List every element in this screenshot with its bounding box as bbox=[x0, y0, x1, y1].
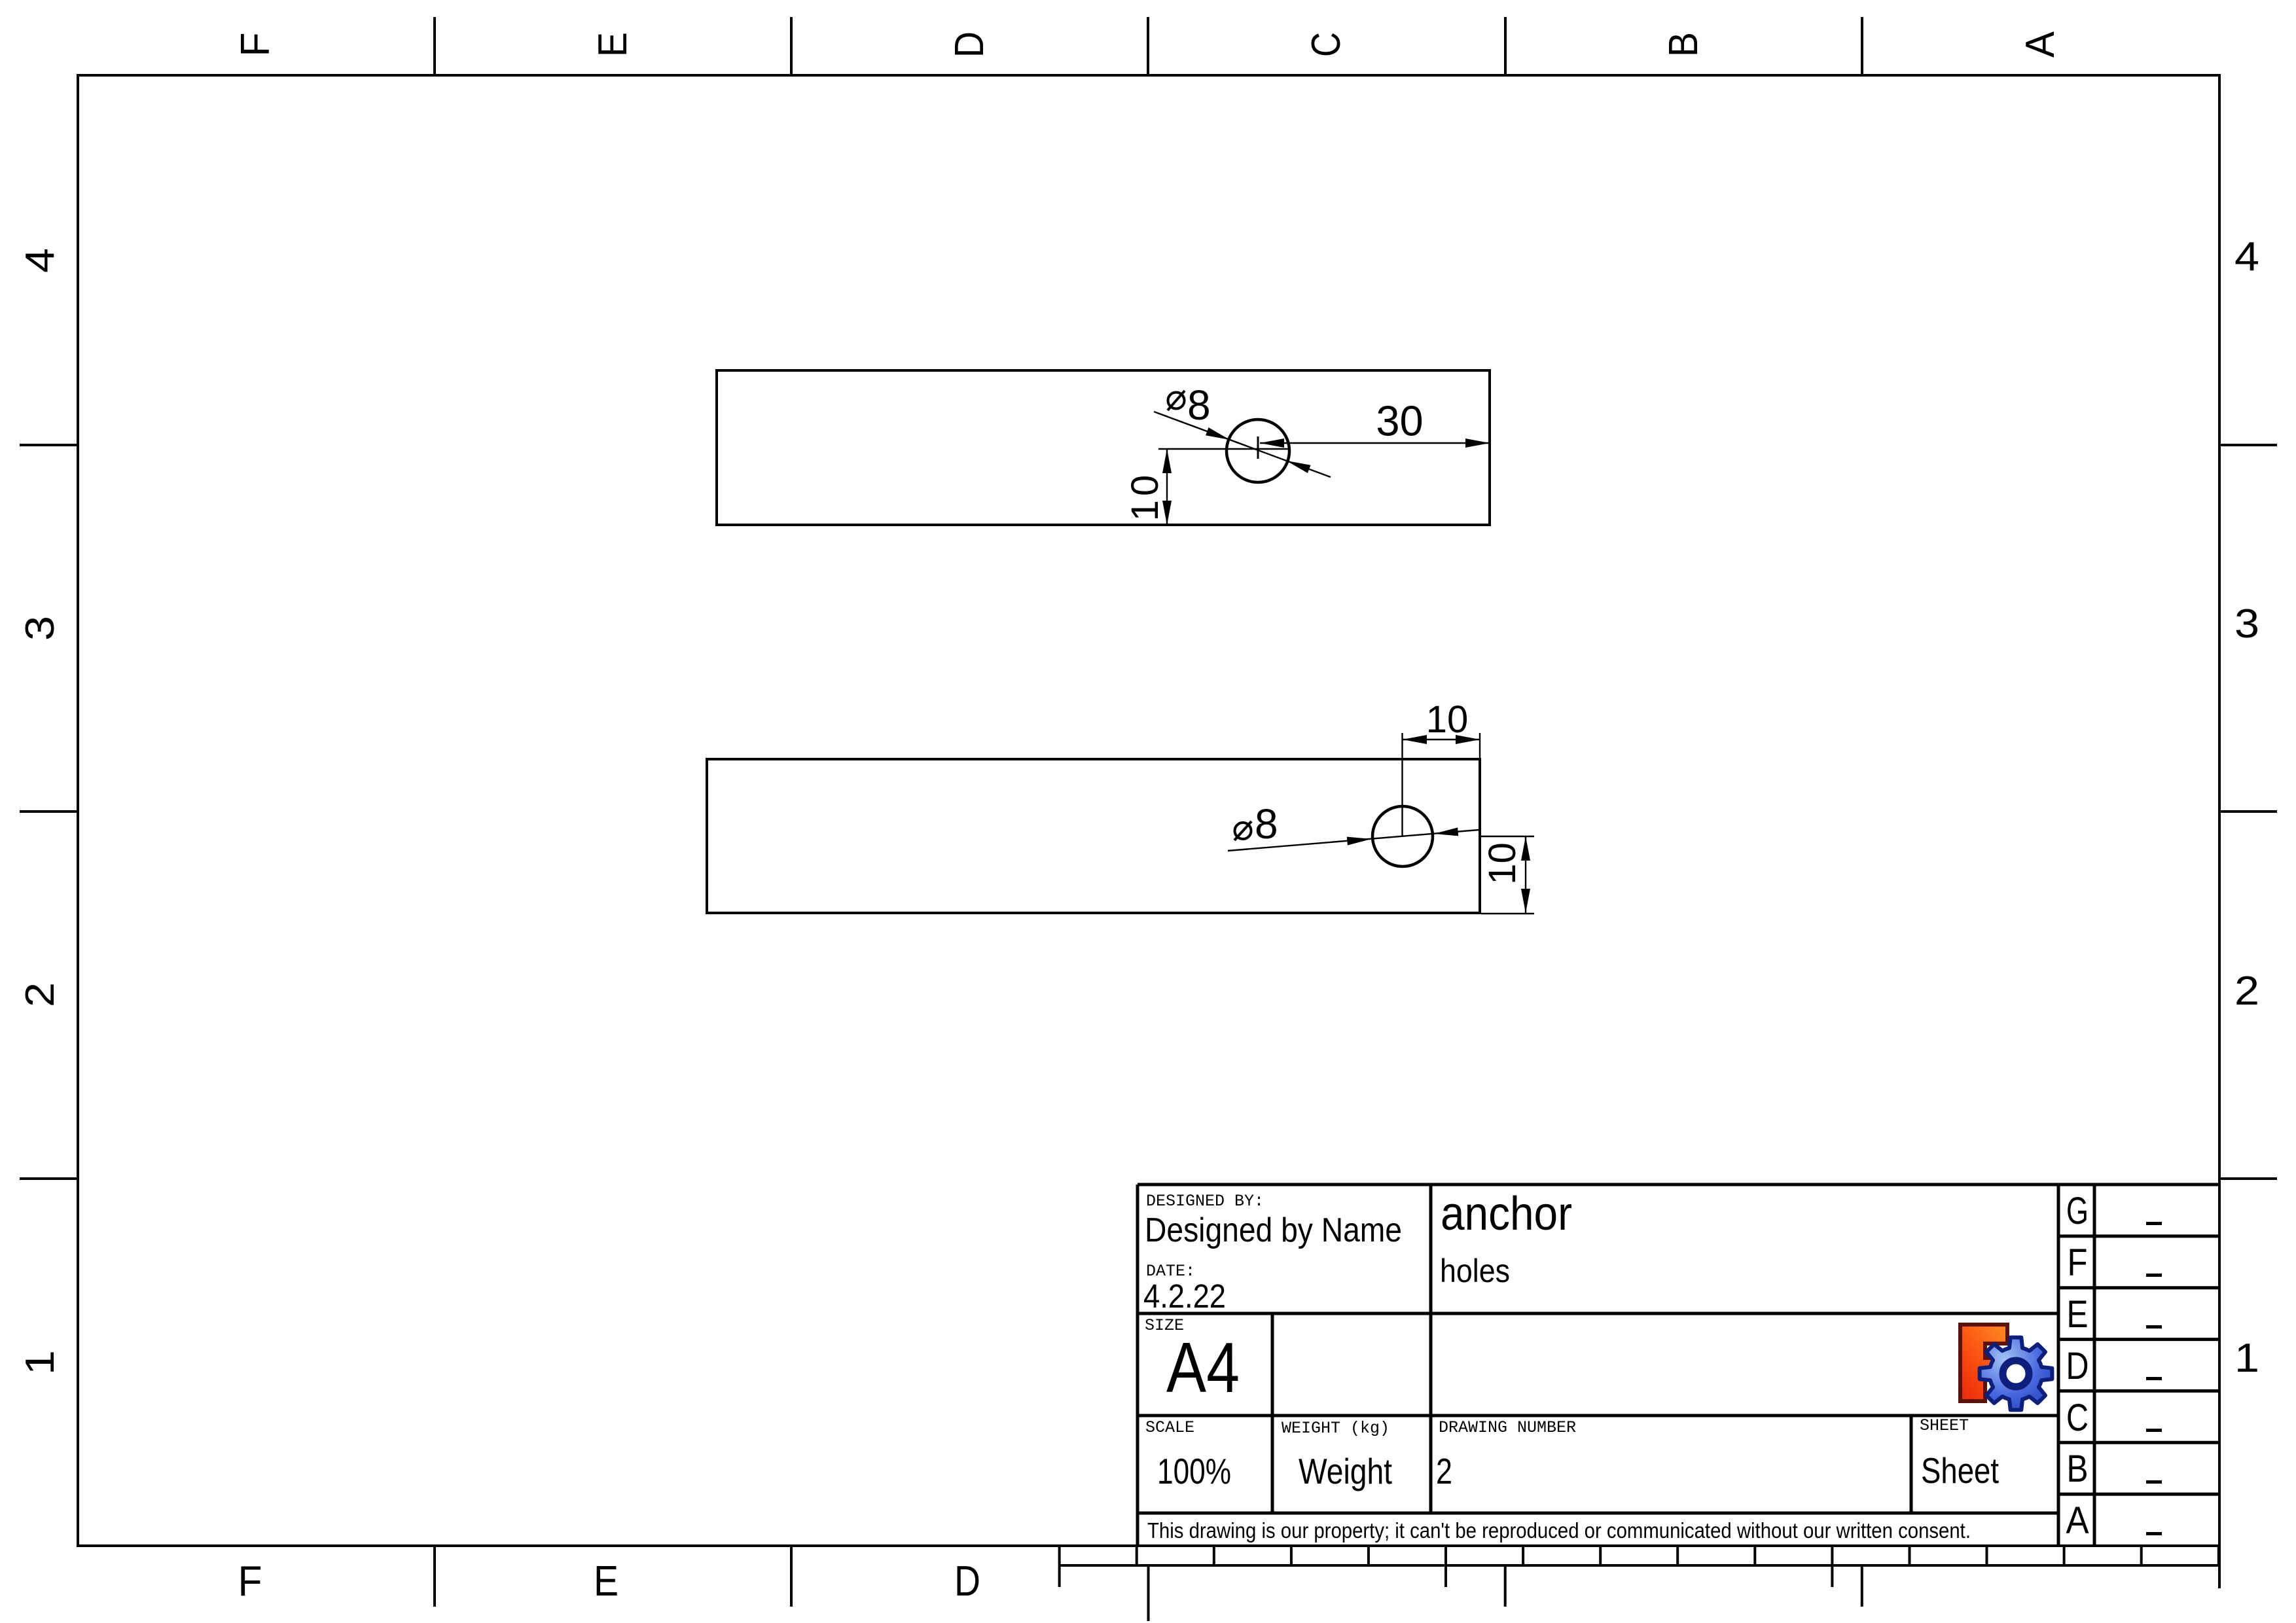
svg-text:A: A bbox=[2018, 31, 2063, 58]
svg-text:D: D bbox=[947, 31, 992, 58]
svg-text:anchor: anchor bbox=[1441, 1188, 1572, 1240]
svg-text:B: B bbox=[2067, 1448, 2089, 1490]
svg-text:Designed by Name: Designed by Name bbox=[1145, 1211, 1402, 1249]
svg-text:2: 2 bbox=[2234, 969, 2259, 1014]
svg-text:DESIGNED BY:: DESIGNED BY: bbox=[1146, 1192, 1264, 1211]
svg-text:F: F bbox=[233, 33, 278, 57]
svg-text:100%: 100% bbox=[1157, 1451, 1231, 1491]
svg-text:3: 3 bbox=[2234, 601, 2259, 647]
svg-text:10: 10 bbox=[1426, 698, 1469, 741]
svg-text:1: 1 bbox=[2234, 1336, 2259, 1381]
svg-text:2: 2 bbox=[18, 982, 63, 1007]
svg-text:This drawing is our property;: This drawing is our property; it can't b… bbox=[1147, 1518, 1971, 1543]
svg-text:Sheet: Sheet bbox=[1921, 1450, 1999, 1491]
svg-text:10: 10 bbox=[1124, 471, 1166, 522]
svg-text:8: 8 bbox=[1187, 382, 1211, 429]
svg-text:1: 1 bbox=[18, 1350, 63, 1375]
svg-text:A: A bbox=[2066, 1499, 2089, 1542]
svg-text:F: F bbox=[238, 1557, 262, 1605]
svg-text:C: C bbox=[1304, 32, 1349, 57]
svg-text:B: B bbox=[1661, 32, 1706, 57]
svg-text:D: D bbox=[2066, 1345, 2089, 1387]
svg-text:SCALE: SCALE bbox=[1145, 1418, 1194, 1437]
svg-text:holes: holes bbox=[1440, 1253, 1510, 1289]
svg-text:WEIGHT (kg): WEIGHT (kg) bbox=[1282, 1419, 1390, 1438]
svg-text:4: 4 bbox=[18, 248, 63, 273]
svg-text:A4: A4 bbox=[1166, 1328, 1240, 1408]
svg-text:E: E bbox=[590, 32, 636, 57]
svg-text:2: 2 bbox=[1436, 1451, 1452, 1491]
svg-text:4.2.22: 4.2.22 bbox=[1143, 1277, 1226, 1315]
svg-text:F: F bbox=[2068, 1241, 2088, 1284]
svg-text:4: 4 bbox=[2234, 234, 2259, 279]
svg-text:10: 10 bbox=[1481, 842, 1524, 885]
svg-text:D: D bbox=[954, 1557, 980, 1605]
svg-text:3: 3 bbox=[18, 616, 63, 641]
svg-text:E: E bbox=[594, 1557, 619, 1605]
svg-text:SHEET: SHEET bbox=[1920, 1416, 1969, 1435]
svg-text:DRAWING NUMBER: DRAWING NUMBER bbox=[1439, 1418, 1576, 1437]
svg-text:G: G bbox=[2066, 1190, 2089, 1232]
svg-text:8: 8 bbox=[1255, 800, 1278, 847]
svg-text:30: 30 bbox=[1376, 397, 1423, 445]
svg-text:C: C bbox=[2066, 1397, 2089, 1439]
svg-text:Weight: Weight bbox=[1299, 1451, 1392, 1491]
svg-text:E: E bbox=[2067, 1293, 2089, 1336]
